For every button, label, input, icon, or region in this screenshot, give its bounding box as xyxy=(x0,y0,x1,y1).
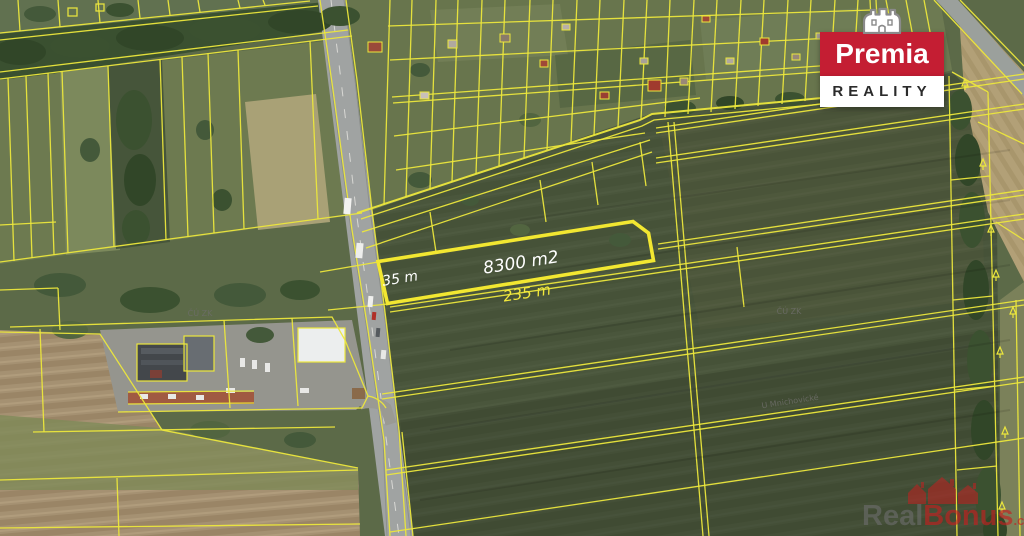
facility-area xyxy=(100,320,368,412)
logo-name-box: Premia xyxy=(820,32,944,76)
logo-subtitle-box: REALITY xyxy=(820,76,944,107)
premia-reality-logo: Premia REALITY xyxy=(820,6,944,107)
cadastre-label-right: ČÚ ZK xyxy=(777,305,802,316)
logo-subtitle: REALITY xyxy=(832,83,931,100)
crown-icon xyxy=(855,6,909,34)
listing-map-image: 8300 m2 35 m 235 m ČÚ ZK ČÚ ZK U Mnichov… xyxy=(0,0,1024,536)
logo-name: Premia xyxy=(835,38,928,69)
cadastre-label-left: ČÚ ZK xyxy=(188,307,213,318)
